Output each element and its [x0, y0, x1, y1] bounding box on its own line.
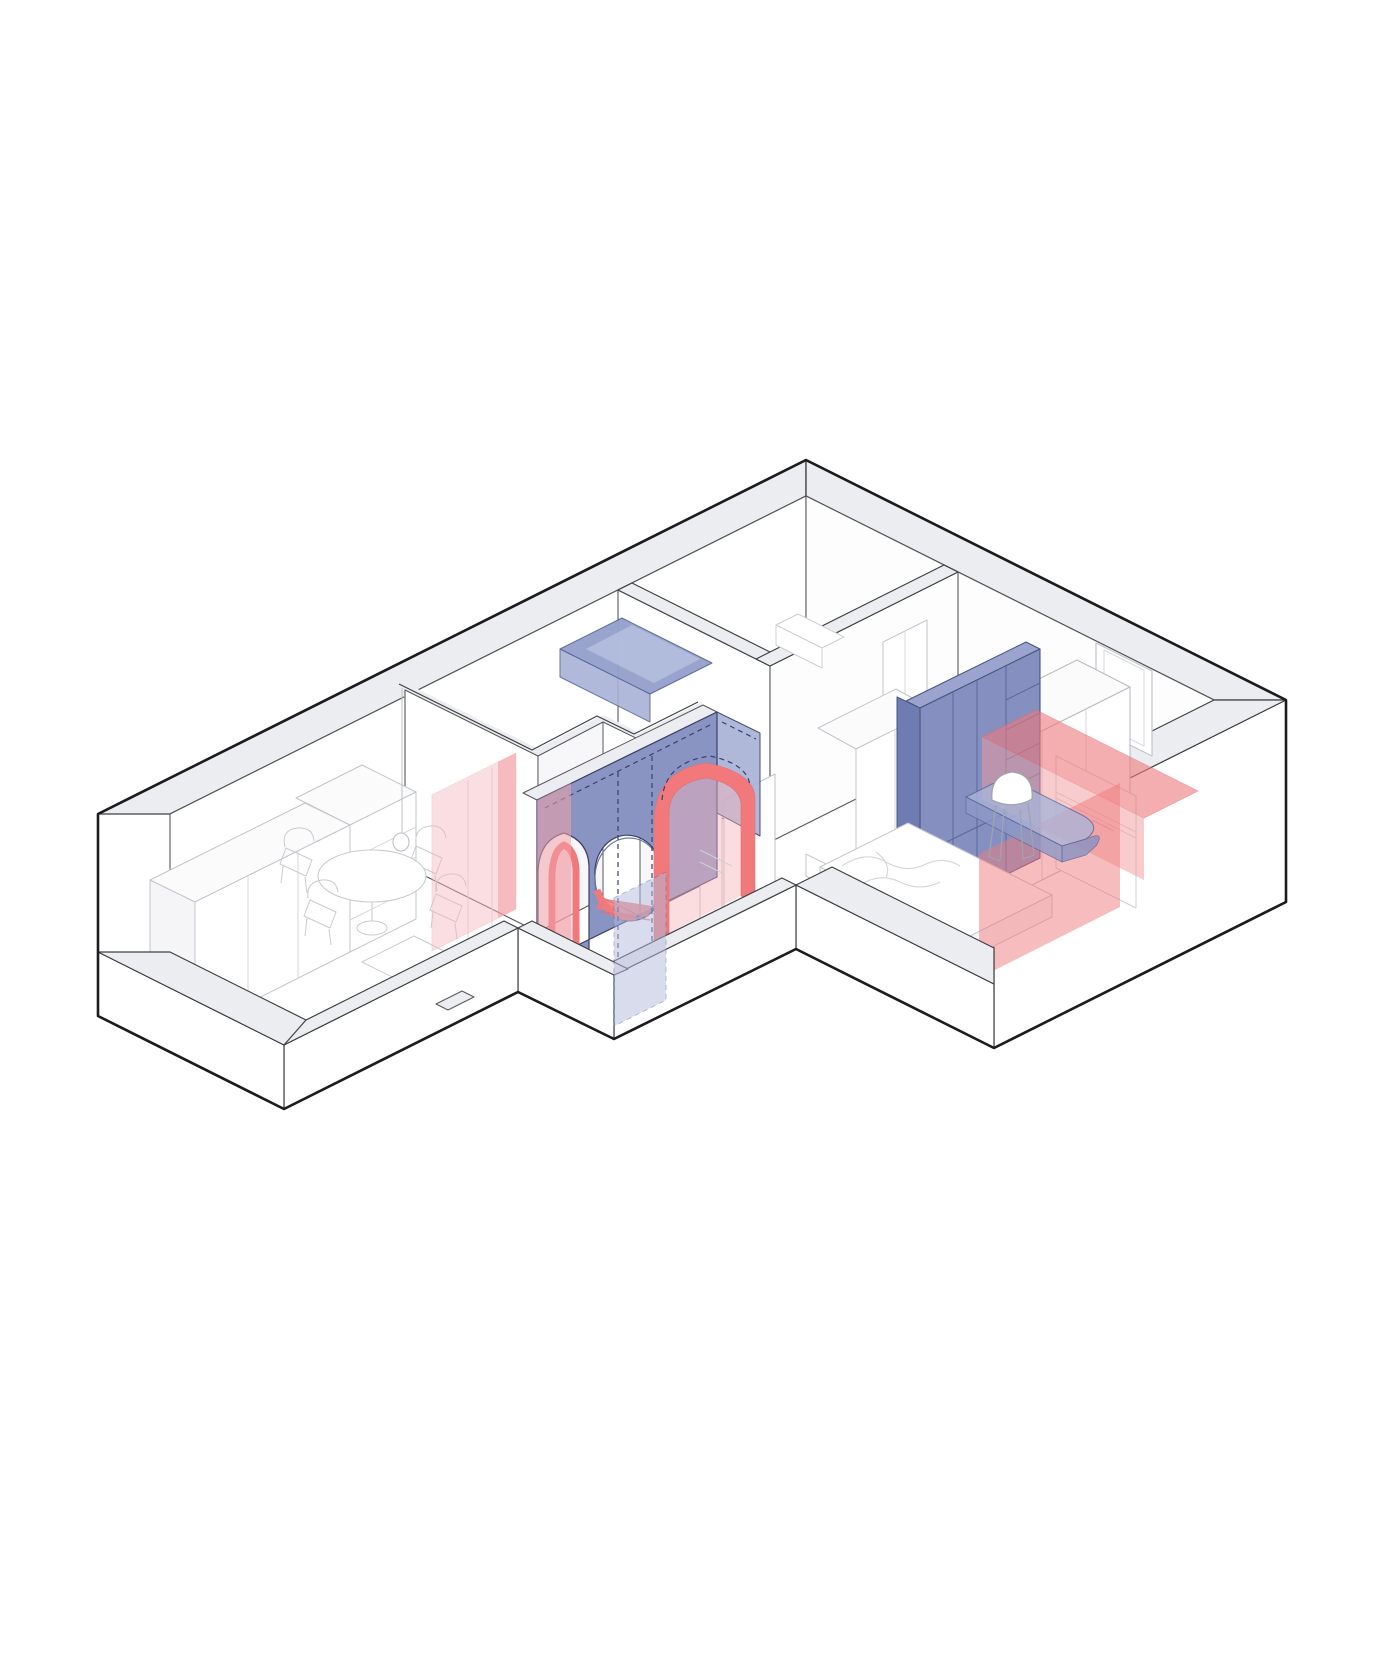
hanging-glass-panel — [614, 872, 666, 1026]
dining-table-top — [318, 850, 426, 902]
dining-table-base — [357, 921, 387, 935]
apartment-axonometric-page — [0, 0, 1400, 1680]
pendant-bulb — [393, 833, 409, 851]
pink-wardrobe-panel-inner — [498, 753, 516, 918]
floor-plan-axonometric-drawing — [0, 0, 1400, 1680]
